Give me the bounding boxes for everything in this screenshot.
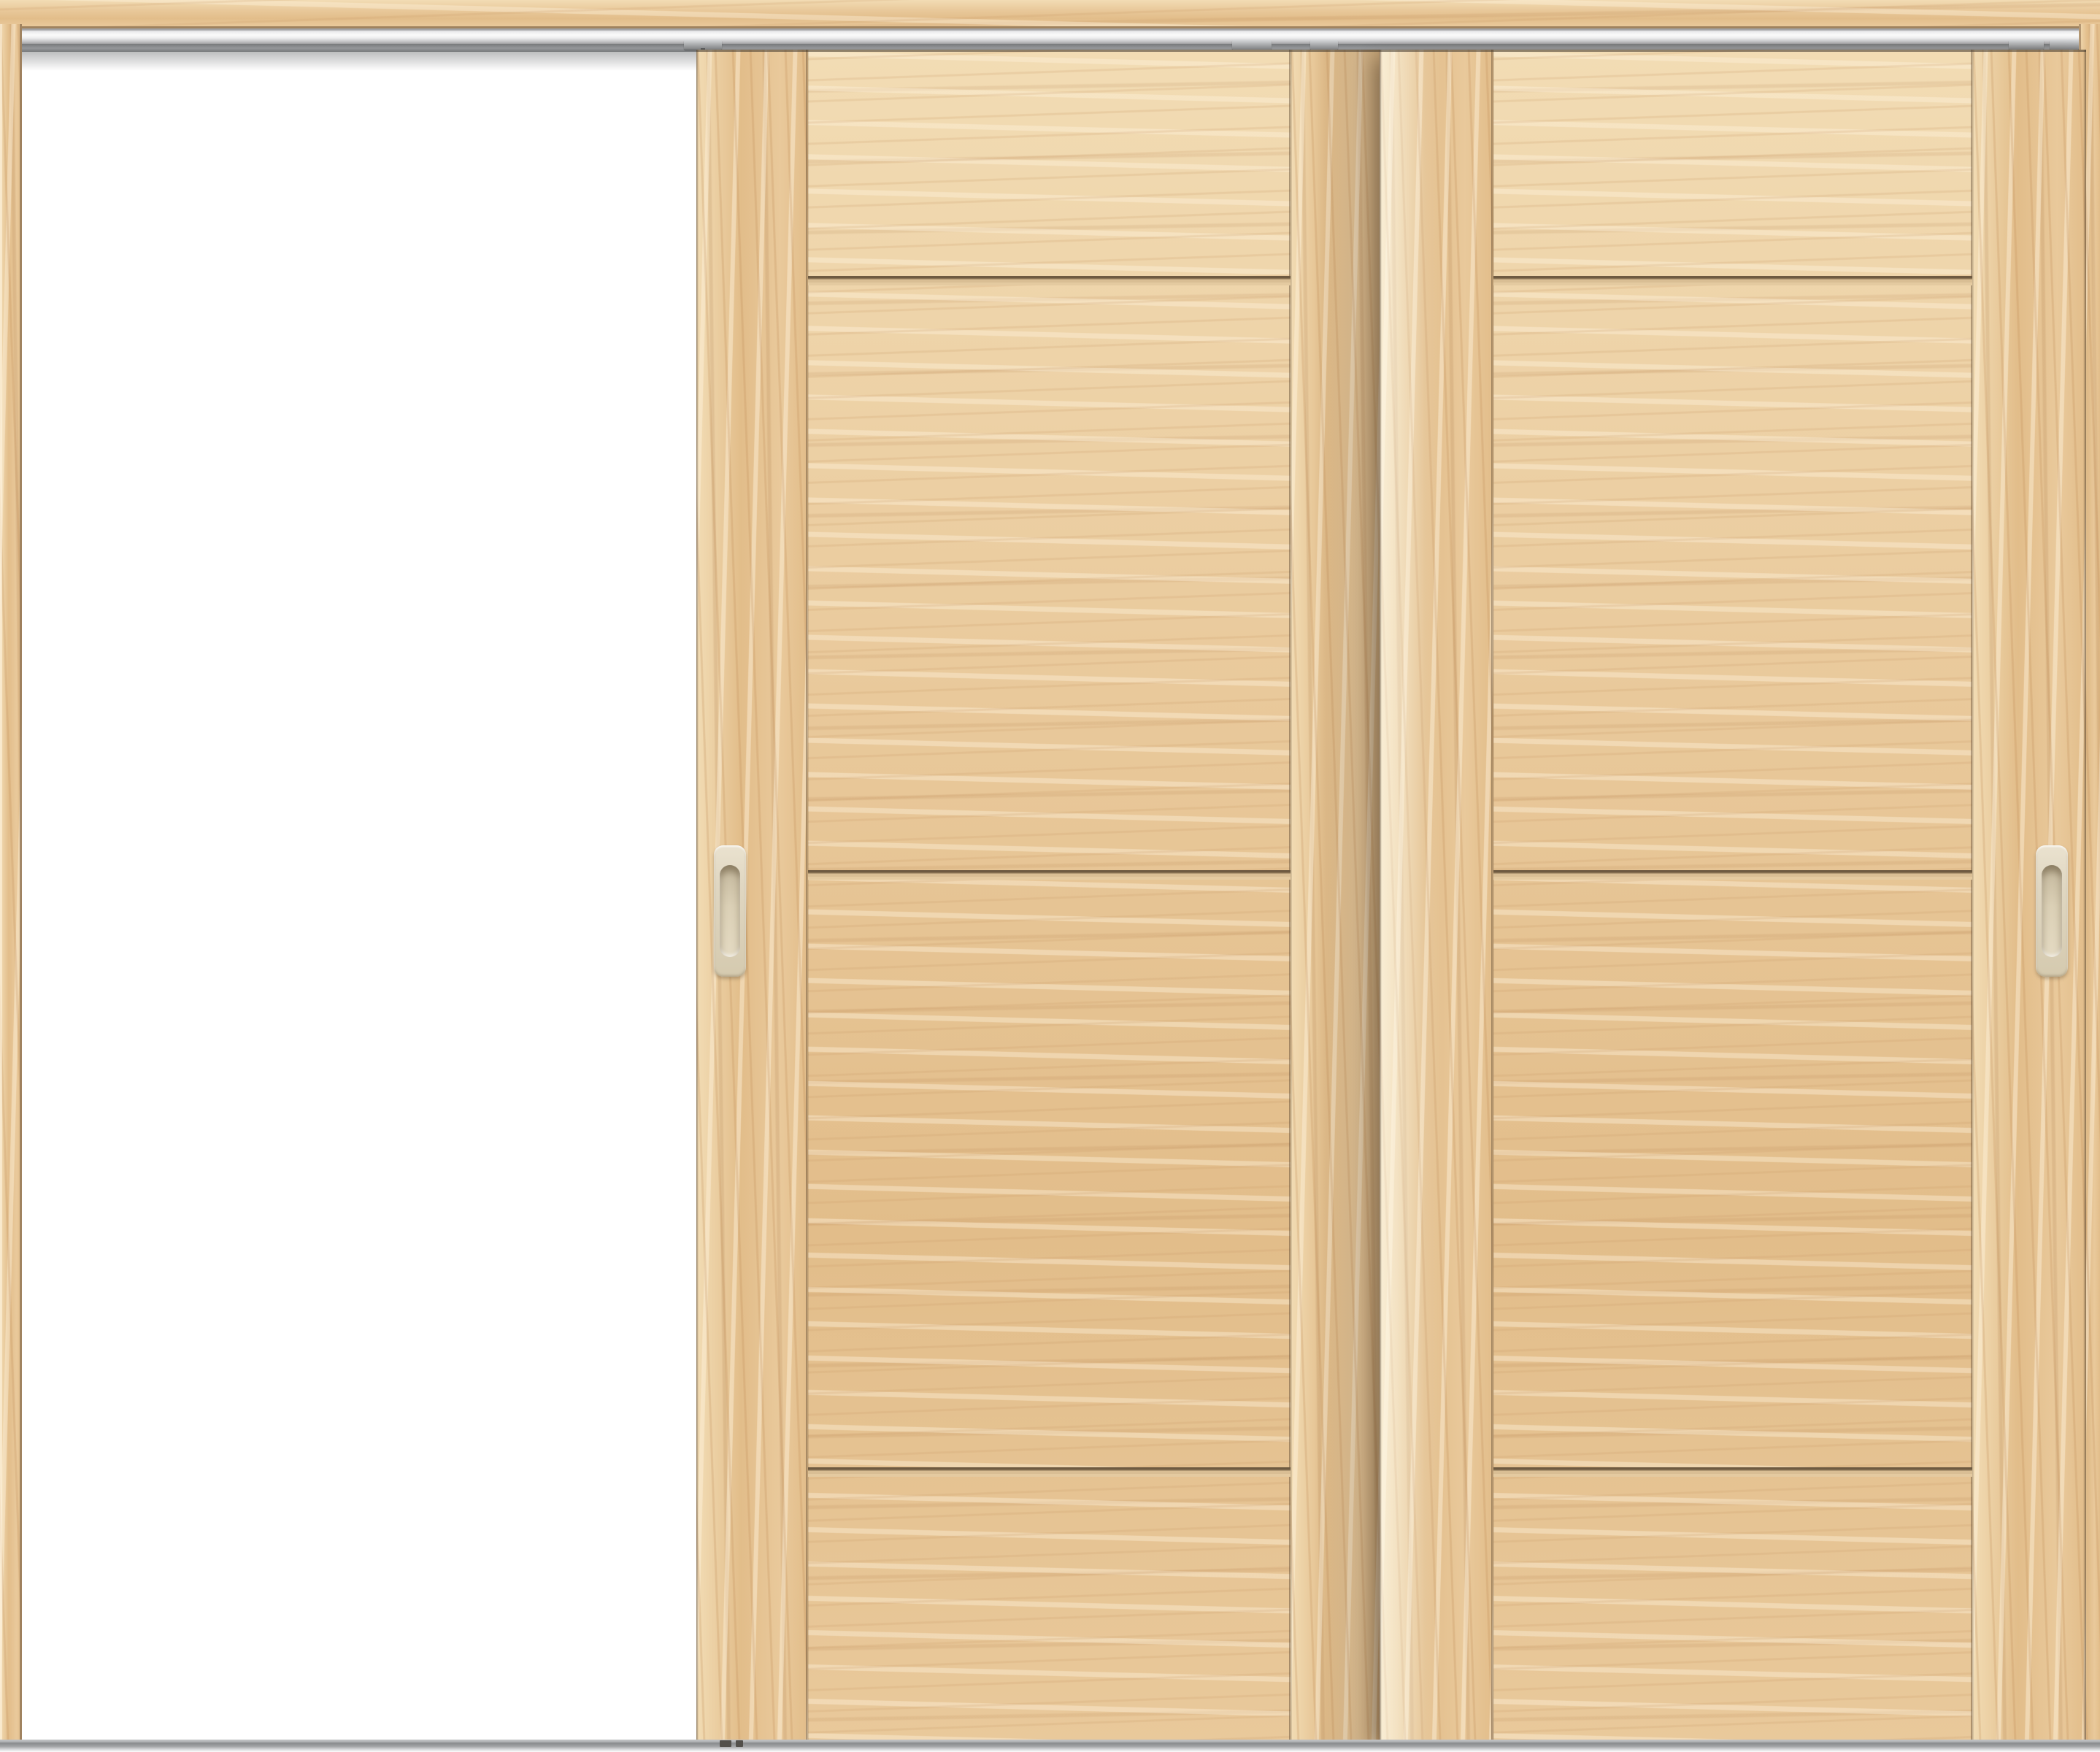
- door-hanger-clip: [1232, 40, 1272, 50]
- frame-jamb-left: [0, 24, 22, 1743]
- door-edge: [2083, 50, 2086, 1743]
- panel-groove: [808, 1467, 1291, 1477]
- door-hanger-clip: [1310, 40, 1338, 50]
- handle-recess: [2042, 865, 2062, 957]
- header-beam: [0, 0, 2100, 28]
- panel-groove: [808, 276, 1291, 285]
- floor-guide-foot: [736, 1740, 743, 1747]
- door-left-panel-field: [808, 50, 1291, 1743]
- door-hanger-clip: [2050, 40, 2079, 50]
- door-edge: [1380, 50, 1382, 1743]
- panel-groove: [1493, 1467, 1972, 1477]
- door-top-edge: [1380, 50, 2086, 52]
- stile-panel-joint: [806, 50, 809, 1743]
- sliding-door-right: [1380, 50, 2086, 1743]
- panel-groove: [1493, 276, 1972, 285]
- door-hanger-clip: [2009, 40, 2044, 50]
- panel-groove: [1493, 870, 1972, 880]
- recessed-pull-handle-left: [714, 845, 746, 977]
- door-right-panel-field: [1493, 50, 1972, 1743]
- stile-sheen: [1380, 50, 1493, 1743]
- floor-guide-foot: [720, 1740, 731, 1747]
- recessed-pull-handle-right: [2036, 845, 2068, 977]
- overlap-shadow: [1314, 50, 1380, 1743]
- door-left-stile-left: [696, 50, 808, 1743]
- top-track-aluminum: [0, 28, 2100, 44]
- sliding-door-left: [696, 50, 1380, 1743]
- sliding-door-product-photo: [0, 0, 2100, 1752]
- panel-groove: [808, 870, 1291, 880]
- handle-recess: [720, 865, 740, 957]
- door-edge: [696, 50, 699, 1743]
- door-right-stile-right: [1972, 50, 2086, 1743]
- stile-panel-joint: [1971, 50, 1974, 1743]
- door-top-edge: [696, 50, 1380, 52]
- stile-panel-joint: [1289, 50, 1292, 1743]
- stile-panel-joint: [1491, 50, 1494, 1743]
- floor-guide-rail: [0, 1740, 2100, 1752]
- track-shadow: [20, 52, 698, 71]
